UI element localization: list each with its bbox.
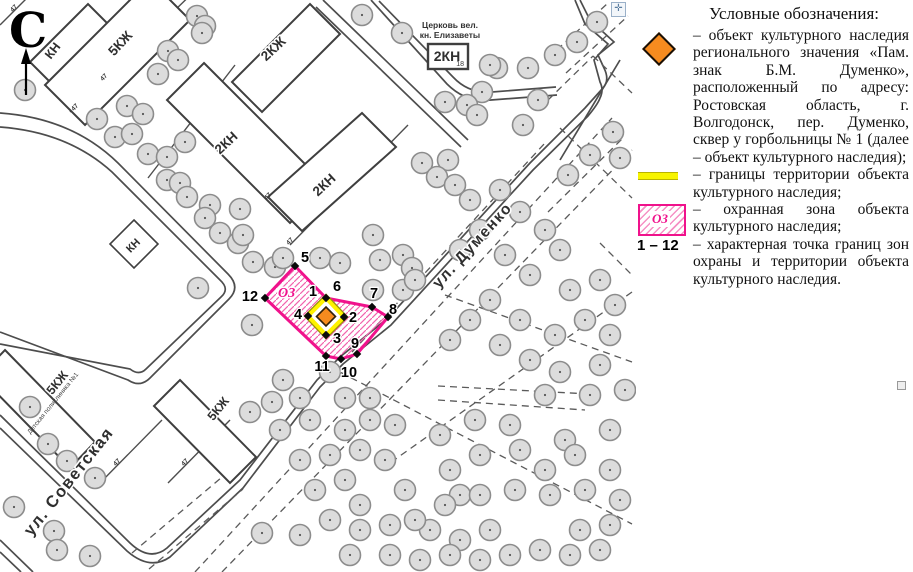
tree-center-dot [389,524,391,526]
tree-center-dot [359,504,361,506]
tree-center-dot [504,254,506,256]
tree-center-dot [596,21,598,23]
tree-center-dot [329,454,331,456]
tree-center-dot [567,174,569,176]
tree-center-dot [114,136,116,138]
tree-center-dot [539,549,541,551]
legend-item-text: – границы территории объекта культурного… [693,166,909,201]
tree-center-dot [489,299,491,301]
tree-center-dot [204,217,206,219]
tree-center-dot [309,419,311,421]
tree-center-dot [459,539,461,541]
tree-center-dot [614,304,616,306]
tree-center-dot [186,196,188,198]
tree-center-dot [476,114,478,116]
tree-center-dot [414,519,416,521]
building-2kzh [232,4,340,112]
svg-text:1: 1 [309,284,317,300]
tree-center-dot [166,156,168,158]
church-label-2: кн. Елизаветы [420,30,480,40]
tree-center-dot [166,179,168,181]
tree-center-dot [624,389,626,391]
svg-text:4: 4 [294,307,302,323]
tree-center-dot [619,499,621,501]
svg-text:12: 12 [242,289,258,305]
legend-item-protection-zone: ОЗ – охранная зона объекта культурного н… [637,201,909,236]
map-area: С КН 5КЖ 2КЖ 2КН 2КН КН 5КЖ 5КЖ Детская … [0,0,636,572]
tree-center-dot [361,14,363,16]
tree-center-dot [509,554,511,556]
tree-center-dot [447,159,449,161]
tree-center-dot [574,454,576,456]
svg-text:5: 5 [301,250,309,266]
church-label-1: Церковь вел. [422,20,478,30]
tree-center-dot [359,529,361,531]
legend-item-characteristic-points: 1 – 12 – характерная точка границ зон ох… [637,236,909,288]
territory-boundary-line-icon [638,172,678,180]
tree-center-dot [439,434,441,436]
legend-item-text: – охранная зона объекта культурного насл… [693,201,909,236]
tree-center-dot [379,259,381,261]
tree-center-dot [522,124,524,126]
tree-center-dot [411,267,413,269]
tree-center-dot [404,489,406,491]
tree-center-dot [239,208,241,210]
tree-center-dot [584,489,586,491]
tree-center-dot [389,554,391,556]
svg-text:6: 6 [333,279,341,295]
svg-text:2: 2 [349,310,357,326]
tree-center-dot [369,419,371,421]
tree-center-dot [619,157,621,159]
tree-center-dot [209,204,211,206]
tree-center-dot [599,279,601,281]
tree-center-dot [184,141,186,143]
tree-center-dot [499,189,501,191]
svg-text:8: 8 [389,302,397,318]
tree-center-dot [419,559,421,561]
tree-center-dot [544,229,546,231]
tree-center-dot [544,469,546,471]
tree-center-dot [579,529,581,531]
tree-center-dot [47,443,49,445]
tree-center-dot [609,334,611,336]
tree-center-dot [449,469,451,471]
tree-center-dot [201,32,203,34]
tree-center-dot [282,257,284,259]
svg-text:9: 9 [351,336,359,352]
tree-center-dot [89,555,91,557]
tree-center-dot [13,506,15,508]
tree-center-dot [249,411,251,413]
tree-center-dot [559,371,561,373]
tree-center-dot [474,419,476,421]
tree-center-dot [299,397,301,399]
tree-center-dot [56,549,58,551]
tree-center-dot [599,364,601,366]
tree-center-dot [479,454,481,456]
tree-center-dot [444,101,446,103]
tree-center-dot [349,554,351,556]
tree-center-dot [401,32,403,34]
church-box-number: 18 [456,61,464,68]
tree-center-dot [449,554,451,556]
tree-center-dot [279,429,281,431]
tree-center-dot [177,59,179,61]
tree-center-dot [436,176,438,178]
tree-center-dot [339,262,341,264]
tree-center-dot [554,334,556,336]
tree-center-dot [53,530,55,532]
tree-center-dot [479,559,481,561]
tree-center-dot [369,397,371,399]
tree-center-dot [459,494,461,496]
tree-center-dot [94,477,96,479]
tree-center-dot [96,118,98,120]
legend-item-text: – характерная точка границ зон охраны и … [693,236,909,288]
legend: Условные обозначения: – объект культурно… [637,2,909,288]
tree-center-dot [544,394,546,396]
tree-center-dot [402,254,404,256]
svg-text:47: 47 [285,236,295,246]
tree-center-dot [252,261,254,263]
tree-center-dot [499,344,501,346]
tree-center-dot [142,113,144,115]
tree-center-dot [481,91,483,93]
tree-center-dot [167,50,169,52]
building-5kzh-c [154,380,256,483]
legend-item-text: – объект культурного наследия региональн… [693,27,909,166]
tree-center-dot [589,394,591,396]
tree-center-dot [554,54,556,56]
zone-label: ОЗ [278,286,295,301]
tree-center-dot [589,154,591,156]
legend-item-territory-boundary: – границы территории объекта культурного… [637,166,909,201]
svg-text:3: 3 [333,331,341,347]
tree-center-dot [131,133,133,135]
tree-center-dot [527,67,529,69]
tree-center-dot [569,289,571,291]
map-svg: С КН 5КЖ 2КЖ 2КН 2КН КН 5КЖ 5КЖ Детская … [0,0,636,572]
tree-center-dot [612,131,614,133]
label-5kzh-c: 5КЖ [205,394,233,423]
tree-center-dot [519,211,521,213]
tree-center-dot [599,549,601,551]
tree-center-dot [299,459,301,461]
tree-center-dot [529,274,531,276]
point-range-label: 1 – 12 [637,237,693,254]
tree-center-dot [569,554,571,556]
svg-text:11: 11 [314,359,329,375]
tree-center-dot [466,104,468,106]
move-anchor-icon: ✛ [611,2,626,17]
tree-center-dot [469,319,471,321]
tree-center-dot [429,529,431,531]
tree-center-dot [609,429,611,431]
tree-center-dot [514,489,516,491]
legend-item-heritage-object: – объект культурного наследия региональн… [637,27,909,166]
tree-center-dot [344,397,346,399]
tree-center-dot [449,339,451,341]
site-plan-page: С КН 5КЖ 2КЖ 2КН 2КН КН 5КЖ 5КЖ Детская … [0,0,913,572]
tree-center-dot [282,379,284,381]
svg-text:47: 47 [180,457,190,467]
tree-center-dot [344,479,346,481]
tree-center-dot [549,494,551,496]
tree-center-dot [537,99,539,101]
tree-center-dot [66,460,68,462]
tree-center-dot [489,529,491,531]
resize-handle-artifact [897,381,906,390]
tree-center-dot [509,424,511,426]
tree-center-dot [444,504,446,506]
tree-center-dot [394,424,396,426]
tree-center-dot [359,449,361,451]
tree-center-dot [126,105,128,107]
tree-center-dot [261,532,263,534]
tree-center-dot [414,279,416,281]
tree-center-dot [609,469,611,471]
tree-center-dot [421,162,423,164]
tree-center-dot [519,449,521,451]
heritage-object-diamond-icon [642,32,676,66]
tree-center-dot [219,232,221,234]
tree-center-dot [469,199,471,201]
tree-center-dot [157,73,159,75]
protection-zone-label: ОЗ [650,211,670,227]
tree-center-dot [344,429,346,431]
tree-center-dot [402,289,404,291]
tree-center-dot [29,406,31,408]
tree-center-dot [384,459,386,461]
tree-center-dot [299,534,301,536]
tree-center-dot [251,324,253,326]
tree-center-dot [329,519,331,521]
tree-center-dot [529,359,531,361]
tree-center-dot [197,287,199,289]
tree-center-dot [196,15,198,17]
svg-text:47: 47 [112,457,122,467]
tree-center-dot [454,184,456,186]
tree-center-dot [319,257,321,259]
tree-center-dot [271,401,273,403]
tree-center-dot [576,41,578,43]
svg-text:7: 7 [370,286,378,302]
tree-center-dot [559,249,561,251]
tree-center-dot [609,524,611,526]
tree-center-dot [564,439,566,441]
tree-center-dot [519,319,521,321]
svg-text:10: 10 [341,365,357,381]
protection-zone-hatch-icon: ОЗ [638,204,686,236]
tree-center-dot [584,319,586,321]
tree-center-dot [372,234,374,236]
protection-zone [261,262,392,363]
tree-center-dot [489,64,491,66]
tree-center-dot [479,494,481,496]
tree-center-dot [314,489,316,491]
tree-center-dot [242,234,244,236]
tree-center-dot [147,153,149,155]
legend-title: Условные обозначения: [637,4,909,24]
tree-center-dot [179,182,181,184]
